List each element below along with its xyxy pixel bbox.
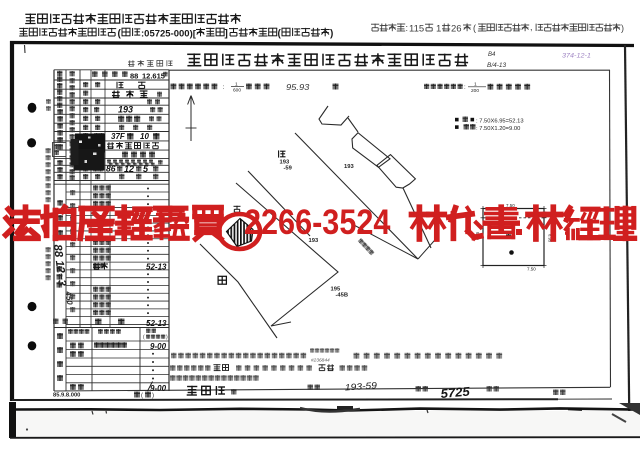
svg-text:2266-3524: 2266-3524 [244,202,391,241]
svg-text:(: ( [143,335,145,341]
svg-text:,: , [530,22,533,32]
svg-text:(: ( [473,23,476,33]
svg-text:115: 115 [409,24,424,35]
svg-text:-45B: -45B [336,293,349,299]
svg-text::: : [223,84,225,91]
svg-text:52-13: 52-13 [146,319,167,328]
svg-text:95.93: 95.93 [286,82,309,92]
svg-text:#236844: #236844 [311,358,330,364]
svg-text:26: 26 [451,24,462,35]
svg-text:1: 1 [436,24,441,35]
svg-text:12.615: 12.615 [142,71,165,80]
svg-text:85.9.8.000: 85.9.8.000 [53,393,80,399]
svg-text:7.50: 7.50 [527,267,536,272]
svg-text::05725-000)[: :05725-000)[ [141,29,197,40]
svg-text:: 7.50X1.20=9.00: : 7.50X1.20=9.00 [476,126,520,132]
svg-text:: 7.50X6.95=52.13: : 7.50X6.95=52.13 [476,119,524,125]
svg-text::: : [406,23,409,33]
svg-text:37F: 37F [111,132,126,141]
svg-text:193: 193 [118,105,133,115]
svg-text:B/4-13: B/4-13 [487,62,507,69]
svg-text:193-59: 193-59 [344,381,377,393]
svg-text:88: 88 [130,71,138,80]
svg-text:(: ( [278,29,282,40]
svg-text::: : [464,85,466,91]
svg-text:B4: B4 [488,52,496,58]
svg-text:): ) [621,23,624,33]
svg-text:]: ] [225,29,228,40]
svg-text:9-00: 9-00 [150,342,167,351]
svg-text:): ) [166,335,168,341]
svg-text:10: 10 [140,132,149,141]
svg-text:374-12-1: 374-12-1 [562,53,591,59]
svg-text:): ) [330,29,333,40]
svg-text:12: 12 [124,164,134,174]
svg-text:86: 86 [106,163,116,173]
svg-text:5725: 5725 [440,384,471,401]
svg-text:-59: -59 [284,166,293,172]
svg-text:): ) [152,393,154,399]
svg-text:200: 200 [471,88,479,94]
svg-text:193: 193 [344,164,354,170]
svg-text:(: ( [141,393,143,399]
svg-text:(: ( [118,29,122,40]
svg-text:9-00: 9-00 [150,384,167,393]
svg-text:52-13: 52-13 [146,263,167,272]
svg-text:600: 600 [233,88,241,94]
